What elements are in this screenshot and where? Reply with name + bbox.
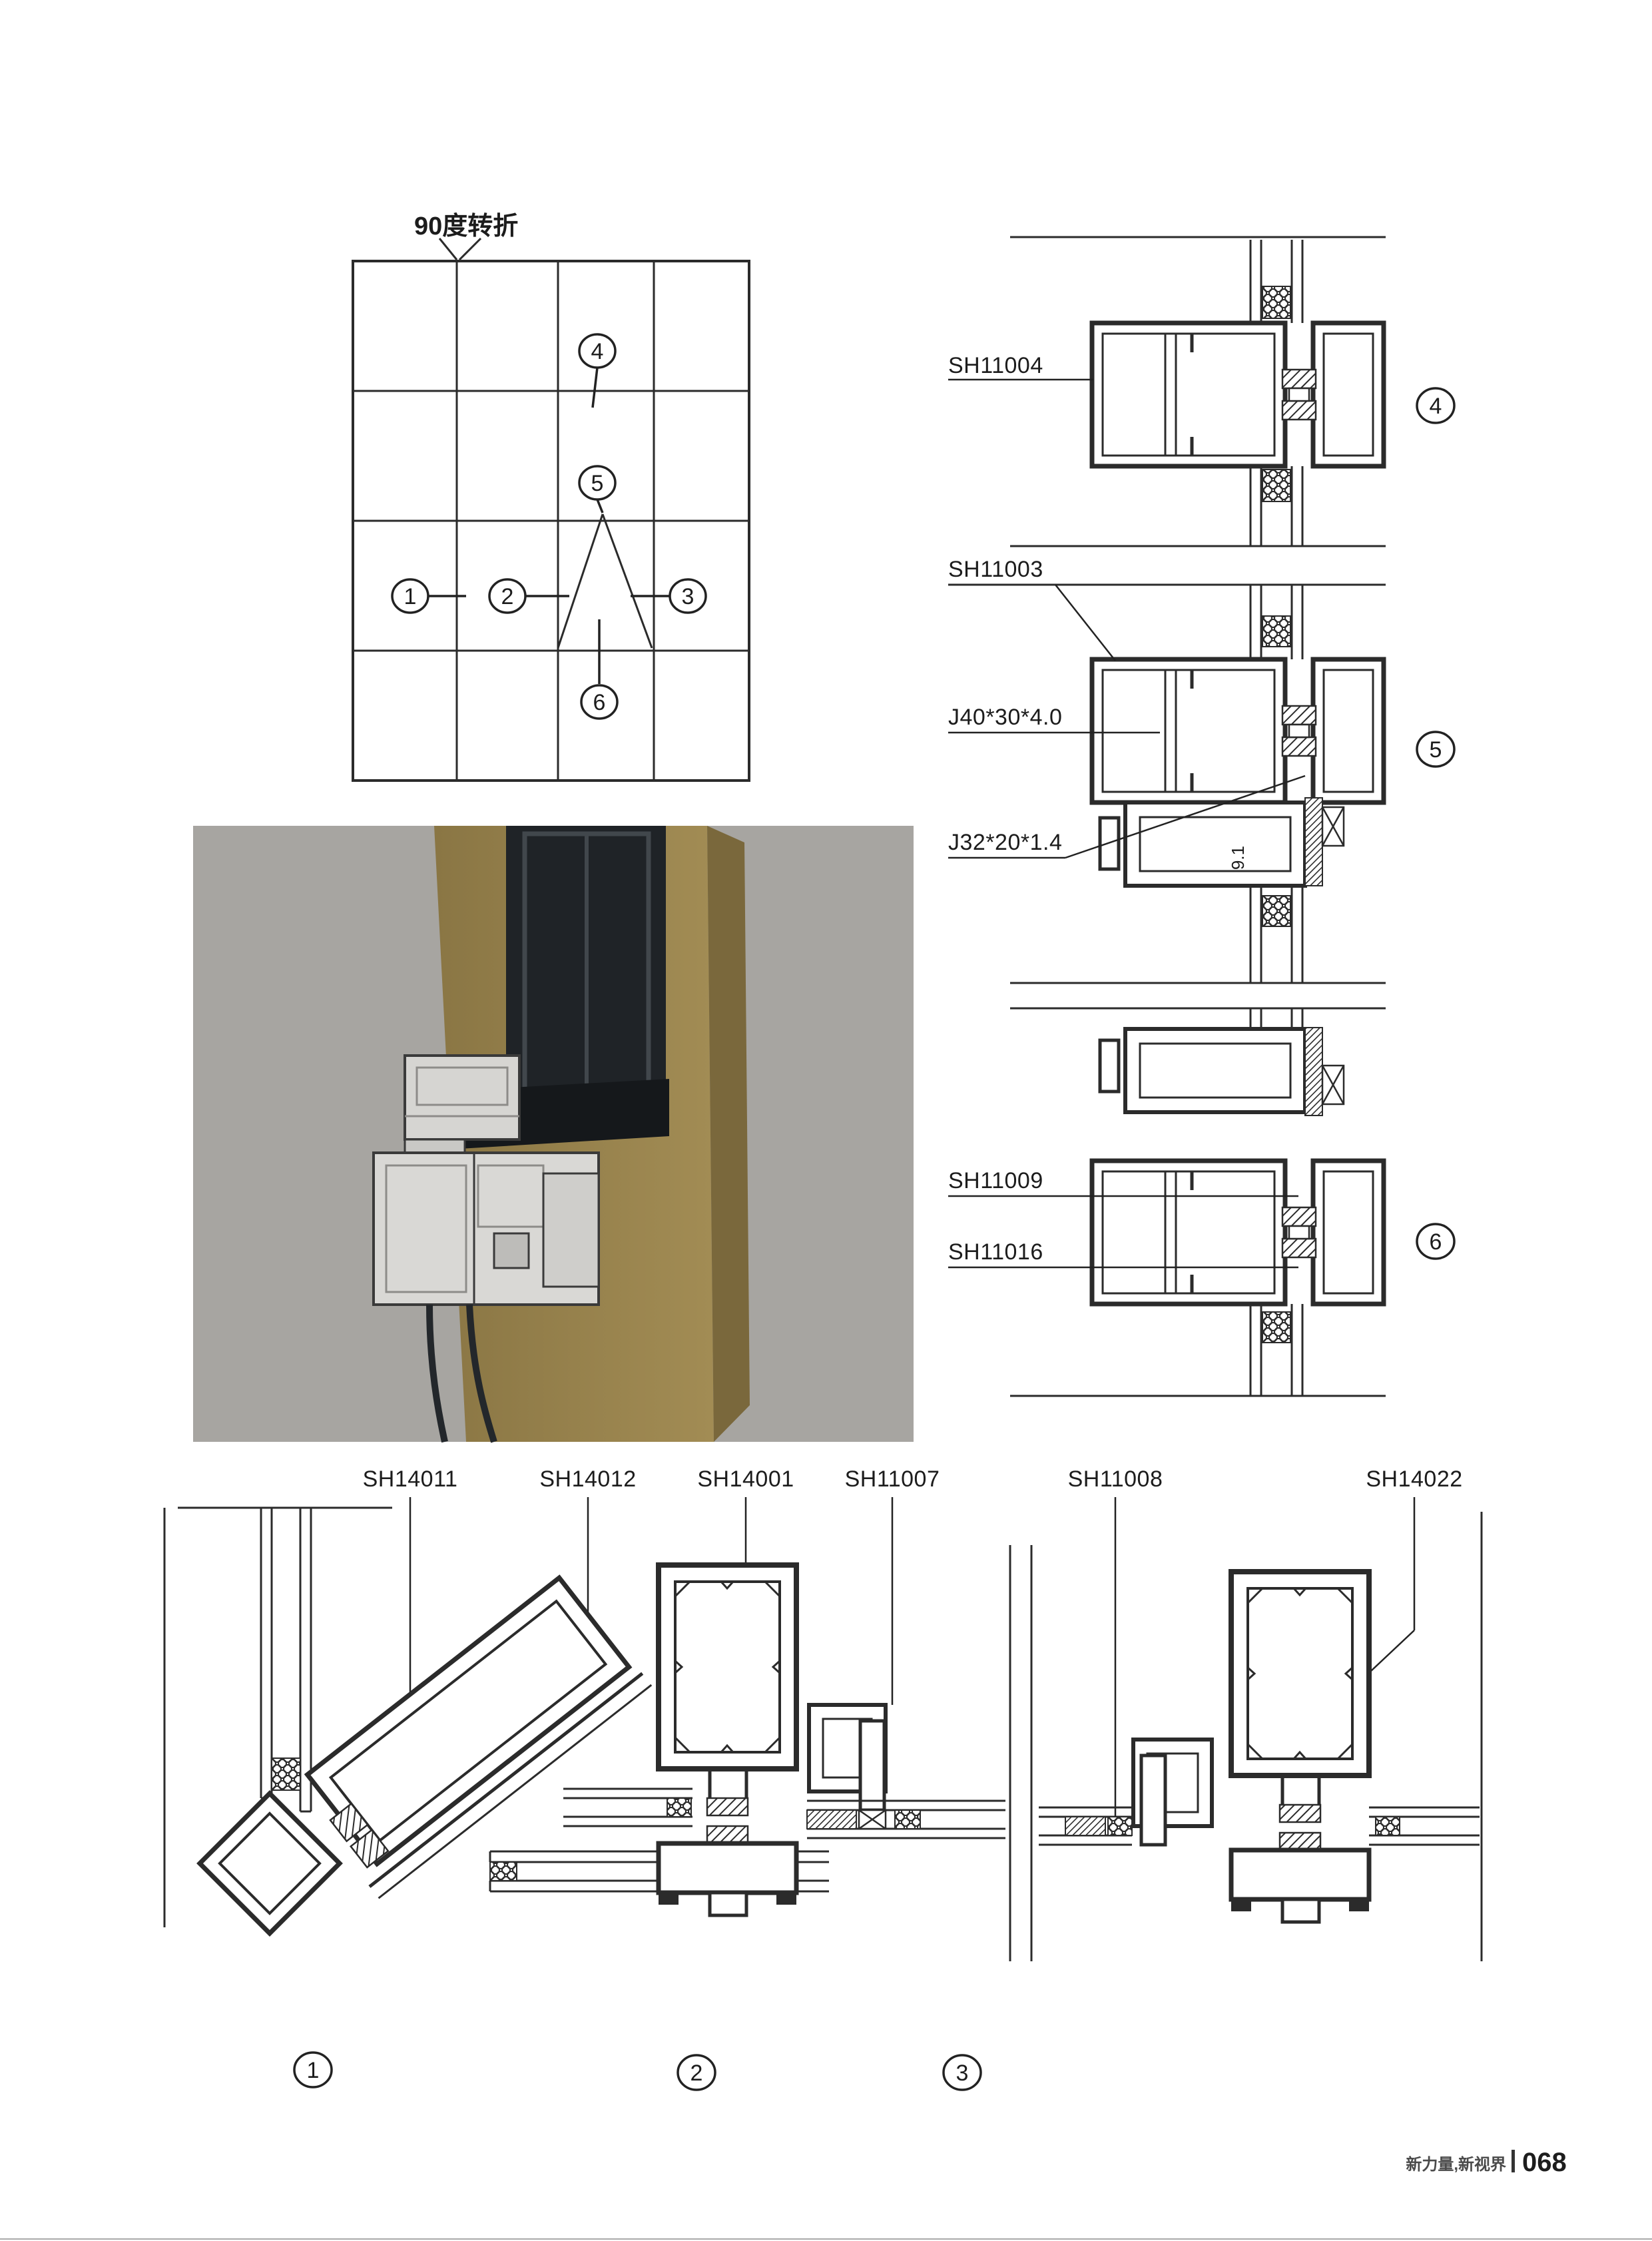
technical-drawing-canvas: 90度转折 4 5 1 2 3 6	[0, 0, 1652, 2241]
label-sh11007: SH11007	[845, 1466, 940, 1492]
footer-brand: 新力量,新视界	[1406, 2155, 1506, 2174]
label-sh14001: SH14001	[697, 1466, 794, 1492]
detail-3-bubble: 3	[956, 2061, 969, 2086]
detail-3-mullion	[1039, 1572, 1480, 1922]
detail-1-bubble: 1	[307, 2058, 320, 2083]
callout-5: 5	[591, 471, 604, 496]
vertical-sections: 9.1 SH11004 SH11003 J40*30*4.0 J32*20*1.…	[948, 237, 1454, 1396]
callout-3: 3	[682, 584, 694, 609]
dimension-9-1: 9.1	[1228, 846, 1248, 870]
label-sh11009: SH11009	[948, 1168, 1043, 1193]
detail-5-vent-frame	[1100, 798, 1344, 886]
detail-2-bubble: 2	[690, 2061, 703, 2086]
detail-6-section	[1092, 1161, 1384, 1304]
label-sh11008: SH11008	[1068, 1466, 1163, 1492]
horizontal-sections: SH14011 SH14012 SH14001 SH11007 SH11008 …	[164, 1466, 1482, 2090]
label-sh11004: SH11004	[948, 353, 1043, 378]
label-sh14012: SH14012	[539, 1466, 636, 1492]
label-sh11016: SH11016	[948, 1239, 1043, 1265]
elevation-grid	[353, 261, 749, 781]
footer-page-number: 068	[1522, 2148, 1567, 2177]
callout-4: 4	[591, 339, 604, 364]
detail-5-bubble: 5	[1430, 737, 1442, 763]
detail-4-bubble: 4	[1430, 394, 1442, 419]
label-j40: J40*30*4.0	[948, 705, 1062, 730]
detail-4-section	[1092, 323, 1384, 466]
label-j32: J32*20*1.4	[948, 830, 1062, 855]
detail-6-bubble: 6	[1430, 1229, 1442, 1255]
aluminum-extrusion-upper	[405, 1056, 519, 1154]
render-photo	[193, 826, 914, 1442]
detail-6-vent-frame	[1100, 1028, 1344, 1116]
plan-callouts	[392, 334, 706, 719]
detail-5-section	[1092, 659, 1384, 802]
rotated-vent-frame	[292, 1574, 651, 1898]
plan-callout-numbers: 4 5 1 2 3 6	[404, 339, 694, 715]
elevation-grid-title: 90度转折	[414, 212, 518, 260]
callout-1: 1	[404, 584, 417, 609]
catalog-page: 90度转折 4 5 1 2 3 6	[0, 0, 1652, 2241]
callout-2: 2	[501, 584, 514, 609]
label-sh11003: SH11003	[948, 557, 1043, 582]
page-footer: 新力量,新视界 068	[0, 2148, 1652, 2239]
corner-note-label: 90度转折	[414, 212, 518, 240]
label-sh14011: SH14011	[363, 1466, 458, 1492]
aluminum-extrusion-lower	[374, 1153, 599, 1305]
bronze-panel-edge	[707, 826, 750, 1442]
label-sh14022: SH14022	[1366, 1466, 1462, 1492]
callout-6: 6	[593, 690, 606, 715]
